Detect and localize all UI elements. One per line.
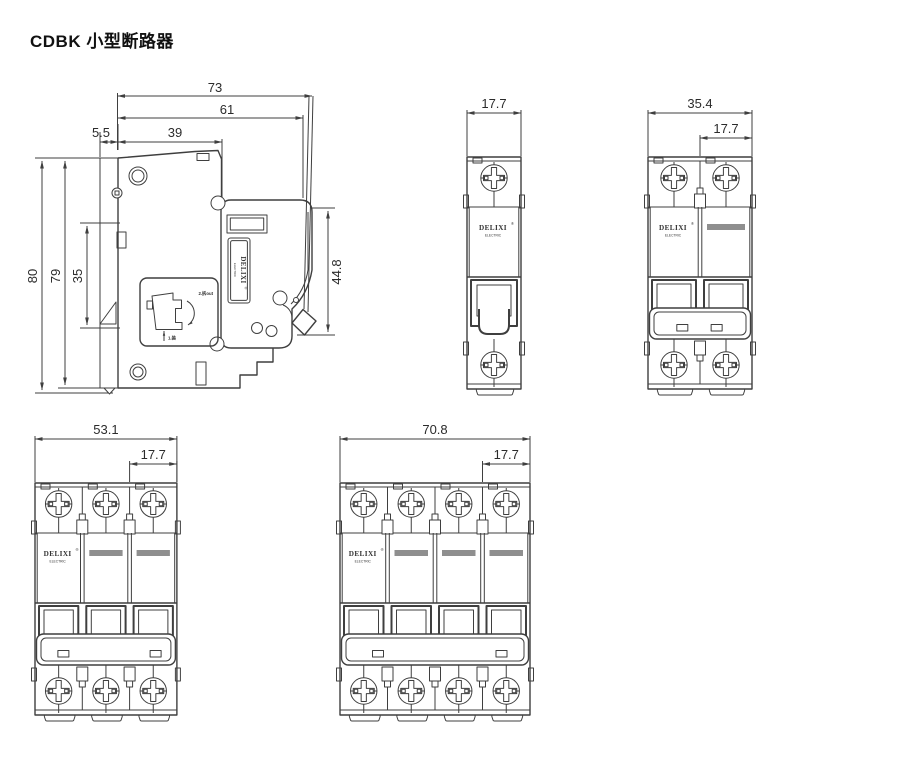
- front-view-2pole: 35.417.7DELIXI®ELECTRIC: [636, 95, 764, 407]
- front-view-1pole: 17.7DELIXI®ELECTRIC: [455, 95, 533, 407]
- svg-text:17.7: 17.7: [141, 447, 166, 462]
- svg-text:®: ®: [511, 221, 514, 226]
- dimension-17.7: 17.7: [483, 447, 531, 482]
- handle-tie-bar: [36, 634, 175, 665]
- svg-text:®: ®: [244, 287, 248, 290]
- foot: [90, 715, 122, 721]
- foot: [43, 715, 75, 721]
- svg-text:DELIXI: DELIXI: [659, 224, 687, 232]
- svg-text:70.8: 70.8: [422, 422, 447, 437]
- front-view-2pole-drawing: 35.417.7DELIXI®ELECTRIC: [636, 95, 764, 407]
- dimension-17.7: 17.7: [700, 121, 752, 156]
- page-title: CDBK 小型断路器: [30, 27, 174, 52]
- svg-text:35: 35: [70, 269, 85, 283]
- gray-bar: [395, 550, 429, 556]
- svg-text:44.8: 44.8: [329, 259, 344, 284]
- rail-release-hook: [292, 310, 316, 336]
- svg-text:ELECTRIC: ELECTRIC: [665, 234, 682, 238]
- svg-text:61: 61: [220, 102, 234, 117]
- brand-label: DELIXI®ELECTRIC: [44, 547, 79, 563]
- svg-text:DELIXI: DELIXI: [479, 224, 507, 232]
- svg-text:®: ®: [76, 547, 79, 552]
- dimension-61: 61: [118, 102, 303, 198]
- foot: [138, 715, 170, 721]
- front-view-4pole-drawing: 70.817.7DELIXI®ELECTRIC: [328, 421, 542, 733]
- dimension-17.7: 17.7: [467, 96, 521, 156]
- dimension-73: 73: [118, 80, 313, 150]
- gray-bar: [442, 550, 476, 556]
- svg-text:1.装: 1.装: [168, 335, 177, 342]
- svg-text:39: 39: [168, 125, 182, 140]
- svg-text:79: 79: [48, 269, 63, 283]
- foot: [348, 715, 380, 721]
- side-view-drawing: 73 61 5.5 39 80 79 35: [25, 80, 347, 400]
- foot: [656, 389, 693, 395]
- handle-tie-bar: [650, 308, 751, 339]
- foot: [708, 389, 745, 395]
- toggle-handle: [471, 280, 517, 334]
- brand-label: DELIXI®ELECTRIC: [659, 221, 694, 238]
- gray-bar: [137, 550, 170, 556]
- svg-text:80: 80: [25, 269, 40, 283]
- svg-text:35.4: 35.4: [687, 96, 712, 111]
- dimension-17.7: 17.7: [130, 447, 177, 482]
- brand-label: DELIXI®ELECTRIC: [479, 221, 514, 238]
- svg-text:5.5: 5.5: [92, 125, 110, 140]
- dimension-5-5: 5.5: [92, 125, 118, 157]
- svg-text:73: 73: [208, 80, 222, 95]
- foot: [396, 715, 428, 721]
- foot: [475, 389, 514, 395]
- svg-text:ELECTRIC: ELECTRIC: [233, 263, 237, 277]
- gray-bar: [707, 224, 745, 230]
- svg-text:ELECTRIC: ELECTRIC: [50, 560, 67, 564]
- svg-text:ELECTRIC: ELECTRIC: [355, 560, 372, 564]
- foot: [491, 715, 523, 721]
- front-view-3pole: 53.117.7DELIXI®ELECTRIC: [23, 421, 189, 733]
- svg-text:DELIXI: DELIXI: [349, 550, 377, 558]
- svg-text:17.7: 17.7: [494, 447, 519, 462]
- svg-text:17.7: 17.7: [713, 121, 738, 136]
- svg-text:53.1: 53.1: [93, 422, 118, 437]
- svg-text:2.拆out: 2.拆out: [198, 290, 213, 297]
- front-view-4pole: 70.817.7DELIXI®ELECTRIC: [328, 421, 542, 733]
- front-face: [221, 96, 316, 348]
- svg-text:DELIXI: DELIXI: [44, 550, 72, 558]
- foot: [443, 715, 475, 721]
- svg-text:17.7: 17.7: [481, 96, 506, 111]
- gray-bar: [89, 550, 122, 556]
- front-view-3pole-drawing: 53.117.7DELIXI®ELECTRIC: [23, 421, 189, 733]
- svg-text:®: ®: [691, 221, 694, 226]
- svg-text:ELECTRIC: ELECTRIC: [485, 234, 502, 238]
- svg-text:DELIXI: DELIXI: [239, 256, 247, 283]
- brand-label: DELIXI®ELECTRIC: [349, 547, 384, 564]
- gray-bar: [490, 550, 524, 556]
- install-diagram: 2.拆out 1.装: [140, 278, 218, 346]
- handle-tie-bar: [342, 634, 529, 665]
- front-view-1pole-drawing: 17.7DELIXI®ELECTRIC: [455, 95, 533, 407]
- svg-text:®: ®: [381, 547, 384, 552]
